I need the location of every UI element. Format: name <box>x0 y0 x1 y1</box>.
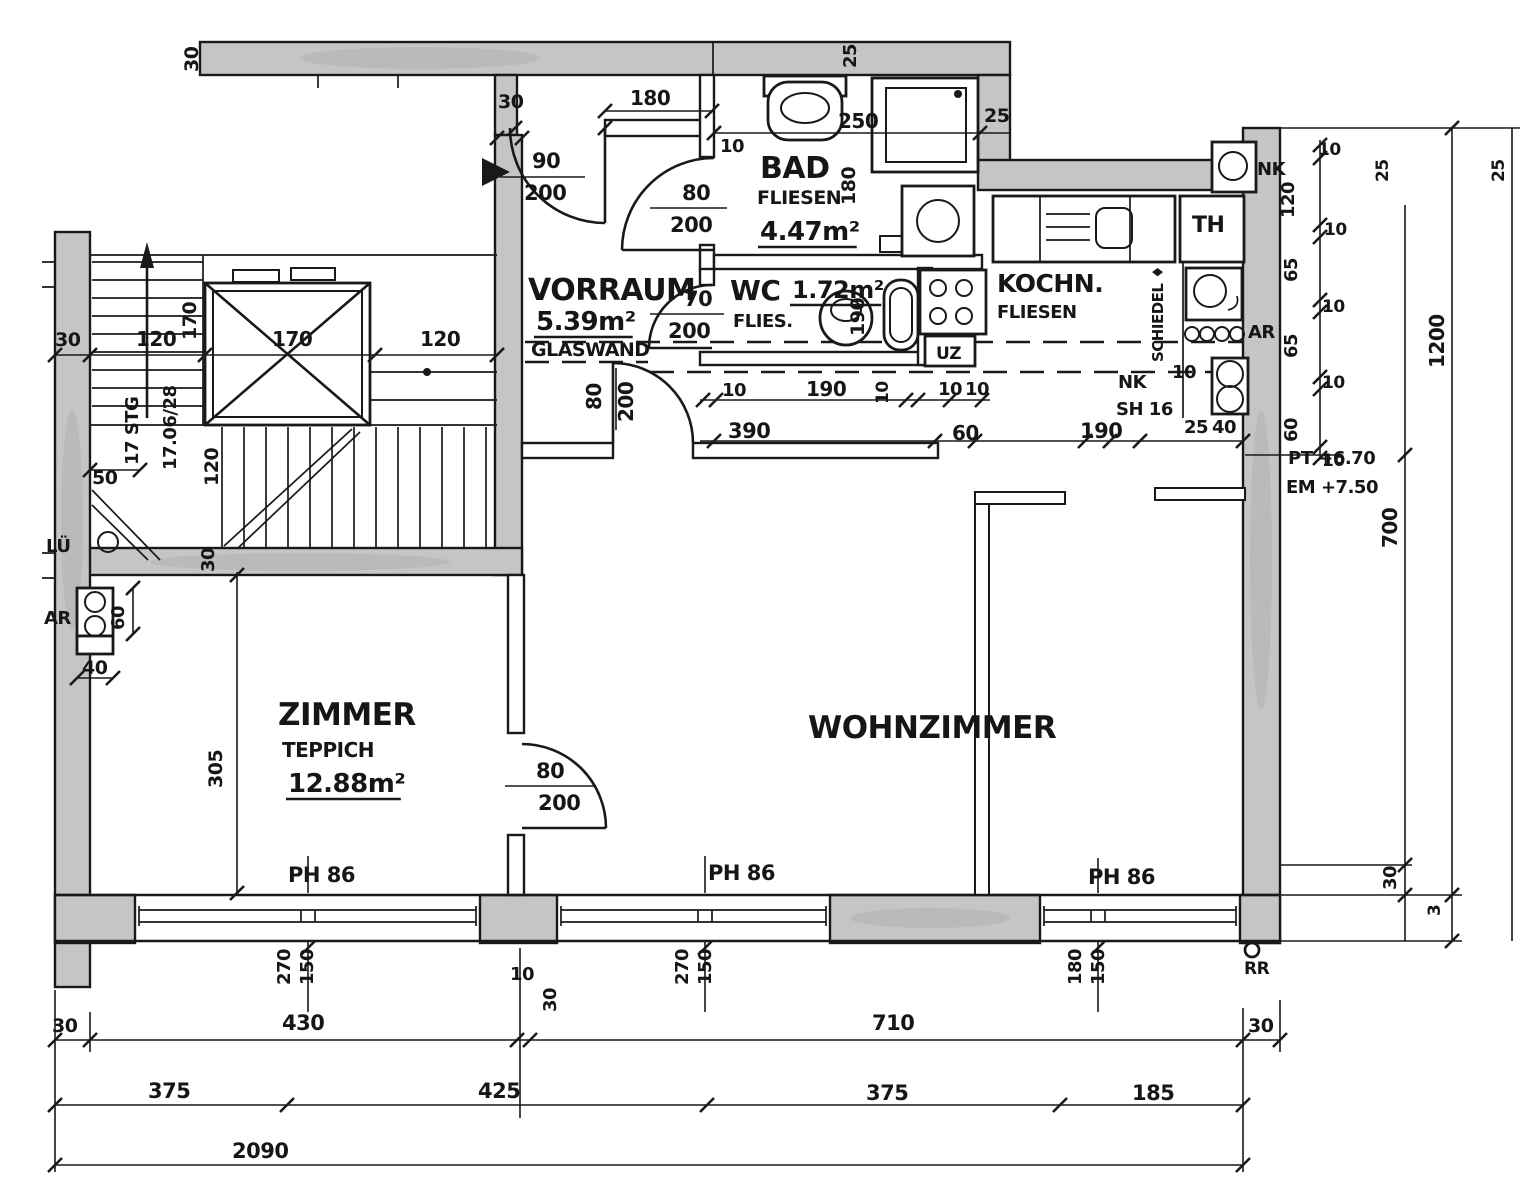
kitchen-counter <box>993 196 1175 262</box>
plan-text-labels: VORRAUM5.39m²GLASWANDBADFLIESEN4.47m²WC1… <box>44 44 1509 1163</box>
dim-stair-120: 120 <box>201 448 223 486</box>
room-th-name: TH <box>1192 213 1224 238</box>
door-vorraum-wz-width: 80 <box>582 383 606 410</box>
dim-niche-10: 10 <box>1172 362 1196 383</box>
dim-entry-30: 30 <box>498 91 524 113</box>
dim-shaft-170h: 170 <box>272 327 312 351</box>
dim-ar-60: 60 <box>108 606 129 630</box>
dim-ar-40: 40 <box>82 657 108 679</box>
dim-zimmer-305: 305 <box>205 750 227 788</box>
cistern-wc <box>884 280 918 350</box>
dim-wcrow-10a: 10 <box>722 380 746 401</box>
exterior-windows <box>55 895 1280 957</box>
dim-right-10e: 10 <box>1322 451 1345 471</box>
window-zimmer <box>139 906 476 926</box>
label-nk-corner: NK <box>1257 159 1287 180</box>
dim-bad-180: 180 <box>838 167 860 205</box>
window-mitte-150: 150 <box>695 949 716 985</box>
dim-pier-30: 30 <box>540 988 561 1012</box>
dim-right-25: 25 <box>1373 159 1393 182</box>
door-vorraum-wz-height: 200 <box>614 382 638 422</box>
label-sh16: SH 16 <box>1116 399 1173 420</box>
label-uz-beam: UZ <box>936 344 961 364</box>
room-vorraum-name: VORRAUM <box>528 273 695 308</box>
dim-right-10d: 10 <box>1322 373 1345 393</box>
door-entry-width: 90 <box>532 149 560 173</box>
dim-total-1200: 1200 <box>1425 314 1449 368</box>
dim-step-25: 25 <box>984 105 1009 127</box>
label-ph86-rechts: PH 86 <box>1088 865 1155 889</box>
door-wc-width: 70 <box>684 287 712 311</box>
dim-left-30: 30 <box>55 329 81 351</box>
chain3-2090: 2090 <box>232 1139 288 1163</box>
door-fraction-lines <box>500 177 727 786</box>
washbasin-bad <box>880 186 974 256</box>
room-kochnische-finish: FLIESEN <box>997 302 1077 323</box>
dim-far-right-25: 25 <box>1489 159 1509 182</box>
structural-walls <box>55 42 1280 987</box>
room-wc-finish: FLIES. <box>733 311 793 332</box>
window-zimmer-150: 150 <box>297 949 318 985</box>
dim-stair-50: 50 <box>92 467 118 489</box>
door-zimmer-height: 200 <box>538 791 580 815</box>
dim-right-10c: 10 <box>1322 297 1345 317</box>
dim-row2-40: 40 <box>1212 417 1236 438</box>
dim-right-60: 60 <box>1281 418 1302 442</box>
shower-drain-icon <box>954 90 962 98</box>
hob-unit <box>920 270 986 334</box>
dim-topband-30: 30 <box>181 46 203 72</box>
chain2-375a: 375 <box>148 1079 190 1103</box>
label-lueftung: LÜ <box>46 535 70 557</box>
dim-right-10b: 10 <box>1324 220 1347 240</box>
label-ar-left: AR <box>44 608 71 629</box>
door-bad-width: 80 <box>682 181 710 205</box>
chain2-425: 425 <box>478 1079 520 1103</box>
dim-wcrow-10b: 10 <box>873 381 893 404</box>
label-nk-kitchen: NK <box>1118 372 1148 393</box>
dim-wcrow-10c: 10 <box>938 379 962 400</box>
label-schiedel-flue: SCHIEDEL ♦ <box>1149 266 1167 362</box>
dim-left-120a: 120 <box>136 327 176 351</box>
chain1-30-right: 30 <box>1248 1015 1274 1037</box>
nk-corner-sink <box>1212 142 1256 192</box>
door-bad-height: 200 <box>670 213 712 237</box>
room-vorraum-area: 5.39m² <box>536 307 636 337</box>
label-ph86-mitte: PH 86 <box>708 861 775 885</box>
dim-bottomright-3: 3 <box>1425 905 1445 916</box>
dim-shower-25: 25 <box>840 44 861 68</box>
dim-stairwall-30: 30 <box>198 548 219 572</box>
dim-row2-25: 25 <box>1184 417 1208 438</box>
room-wc-name: WC <box>730 274 780 307</box>
room-zimmer-area: 12.88m² <box>288 769 405 799</box>
dim-bad-250: 250 <box>838 109 878 133</box>
label-level-em: EM +7.50 <box>1286 477 1378 498</box>
window-rechts <box>1044 906 1236 926</box>
dim-wcrow-190: 190 <box>806 377 846 401</box>
window-zimmer-270: 270 <box>274 949 295 985</box>
room-bad-area: 4.47m² <box>760 217 860 247</box>
window-rechts-150: 150 <box>1088 949 1109 985</box>
door-zimmer-width: 80 <box>536 759 564 783</box>
dim-row2-60: 60 <box>952 421 979 445</box>
dim-wcrow-10d: 10 <box>965 379 989 400</box>
door-entry-height: 200 <box>524 181 566 205</box>
room-kochnische-name: KOCHN. <box>997 269 1103 298</box>
dim-right-120: 120 <box>1278 182 1299 218</box>
toilet-bad <box>764 76 846 140</box>
window-rechts-180: 180 <box>1065 949 1086 985</box>
dim-row2-390: 390 <box>728 419 770 443</box>
door-wc-height: 200 <box>668 319 710 343</box>
dim-shaft-170v: 170 <box>179 302 201 340</box>
window-mitte <box>561 906 826 926</box>
room-vorraum-glaswand: GLASWAND <box>531 339 650 361</box>
dim-row2-190: 190 <box>1080 419 1122 443</box>
dim-pier-10: 10 <box>510 964 534 985</box>
dim-entry-wall-180: 180 <box>630 86 670 110</box>
floor-plan-canvas: VORRAUM5.39m²GLASWANDBADFLIESEN4.47m²WC1… <box>0 0 1536 1187</box>
chain1-30-left: 30 <box>52 1015 78 1037</box>
dim-right-10a: 10 <box>1318 140 1341 160</box>
chain2-375b: 375 <box>866 1081 908 1105</box>
dim-right-65a: 65 <box>1281 258 1302 282</box>
chain1-430: 430 <box>282 1011 324 1035</box>
window-mitte-270: 270 <box>672 949 693 985</box>
label-stair-steps: 17 STG <box>122 397 143 465</box>
room-zimmer-name: ZIMMER <box>278 697 416 733</box>
dim-wc-190: 190 <box>847 298 869 336</box>
room-wc-area: 1.72m² <box>792 276 884 304</box>
label-rr: RR <box>1244 959 1270 979</box>
rr-drainpipe <box>1245 943 1259 957</box>
dim-bottomright-30: 30 <box>1380 866 1401 890</box>
shower-tray <box>872 78 978 172</box>
room-bad-finish: FLIESEN <box>757 187 841 209</box>
chain1-710: 710 <box>872 1011 914 1035</box>
room-zimmer-finish: TEPPICH <box>282 738 374 762</box>
floor-plan-page: VORRAUM5.39m²GLASWANDBADFLIESEN4.47m²WC1… <box>0 0 1536 1187</box>
chain2-185: 185 <box>1132 1081 1174 1105</box>
room-wohnzimmer-name: WOHNZIMMER <box>808 710 1057 746</box>
label-stair-rise-run: 17.06/28 <box>160 385 181 470</box>
dim-right-65b: 65 <box>1281 334 1302 358</box>
label-ar-kitchen: AR <box>1248 322 1275 343</box>
boiler-unit <box>1212 358 1248 414</box>
label-ph86-zimmer: PH 86 <box>288 863 355 887</box>
dim-right-700: 700 <box>1378 508 1402 548</box>
dim-badwall-10: 10 <box>720 136 744 157</box>
room-bad-name: BAD <box>760 151 830 186</box>
dim-left-120b: 120 <box>420 327 460 351</box>
